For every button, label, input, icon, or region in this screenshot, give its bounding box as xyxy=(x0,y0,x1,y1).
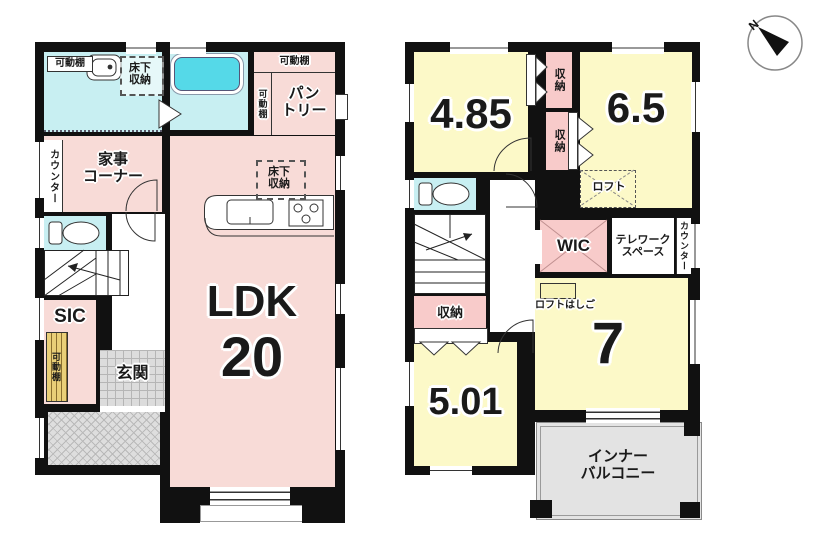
sliding-door-balcony xyxy=(586,408,660,423)
window xyxy=(405,180,414,208)
floor-plan-canvas: 可動棚 床下収納 可動棚 可動棚 パントリー カウンター 家事コーナー 床下収納… xyxy=(0,0,840,554)
window xyxy=(405,362,414,406)
telework-counter-label: カウンター xyxy=(676,218,691,274)
window xyxy=(690,224,700,268)
telework-label: テレワークスペース xyxy=(610,224,676,268)
stairs-2f xyxy=(414,214,486,294)
balcony-post xyxy=(530,500,552,518)
balcony-post xyxy=(680,502,700,518)
floor2-plan: 4.85 収納 収納 6.5 ロフト WIC テレワークスペース カウンター 収… xyxy=(0,0,840,554)
room-7-label: 7 xyxy=(568,298,648,390)
folding-door-icon xyxy=(418,342,482,356)
inner-balcony-label: インナーバルコニー xyxy=(556,444,680,488)
window xyxy=(612,42,664,54)
window xyxy=(405,84,414,122)
door-arc-65 xyxy=(506,174,538,208)
room-4-85-label: 4.85 xyxy=(414,85,528,143)
loft-ladder-icon xyxy=(540,283,576,299)
closet-top-label: 収納 xyxy=(546,54,572,106)
folding-door-icon xyxy=(526,54,548,106)
balcony-post xyxy=(684,422,700,436)
room-6-5-label: 6.5 xyxy=(580,78,692,138)
closet-bottom-label: 収納 xyxy=(414,300,486,326)
compass-icon: N xyxy=(744,12,806,74)
door-arc-485 xyxy=(494,138,532,172)
window xyxy=(691,82,700,132)
window xyxy=(450,42,508,54)
wic-label: WIC xyxy=(540,228,607,264)
door-arc-501 xyxy=(498,320,534,354)
room-5-01-label: 5.01 xyxy=(414,372,517,432)
window xyxy=(690,300,700,364)
window xyxy=(430,466,472,475)
loft-label: ロフト xyxy=(586,178,632,196)
toilet-icon-2f xyxy=(417,180,473,208)
closet-mid-label: 収納 xyxy=(546,114,572,168)
